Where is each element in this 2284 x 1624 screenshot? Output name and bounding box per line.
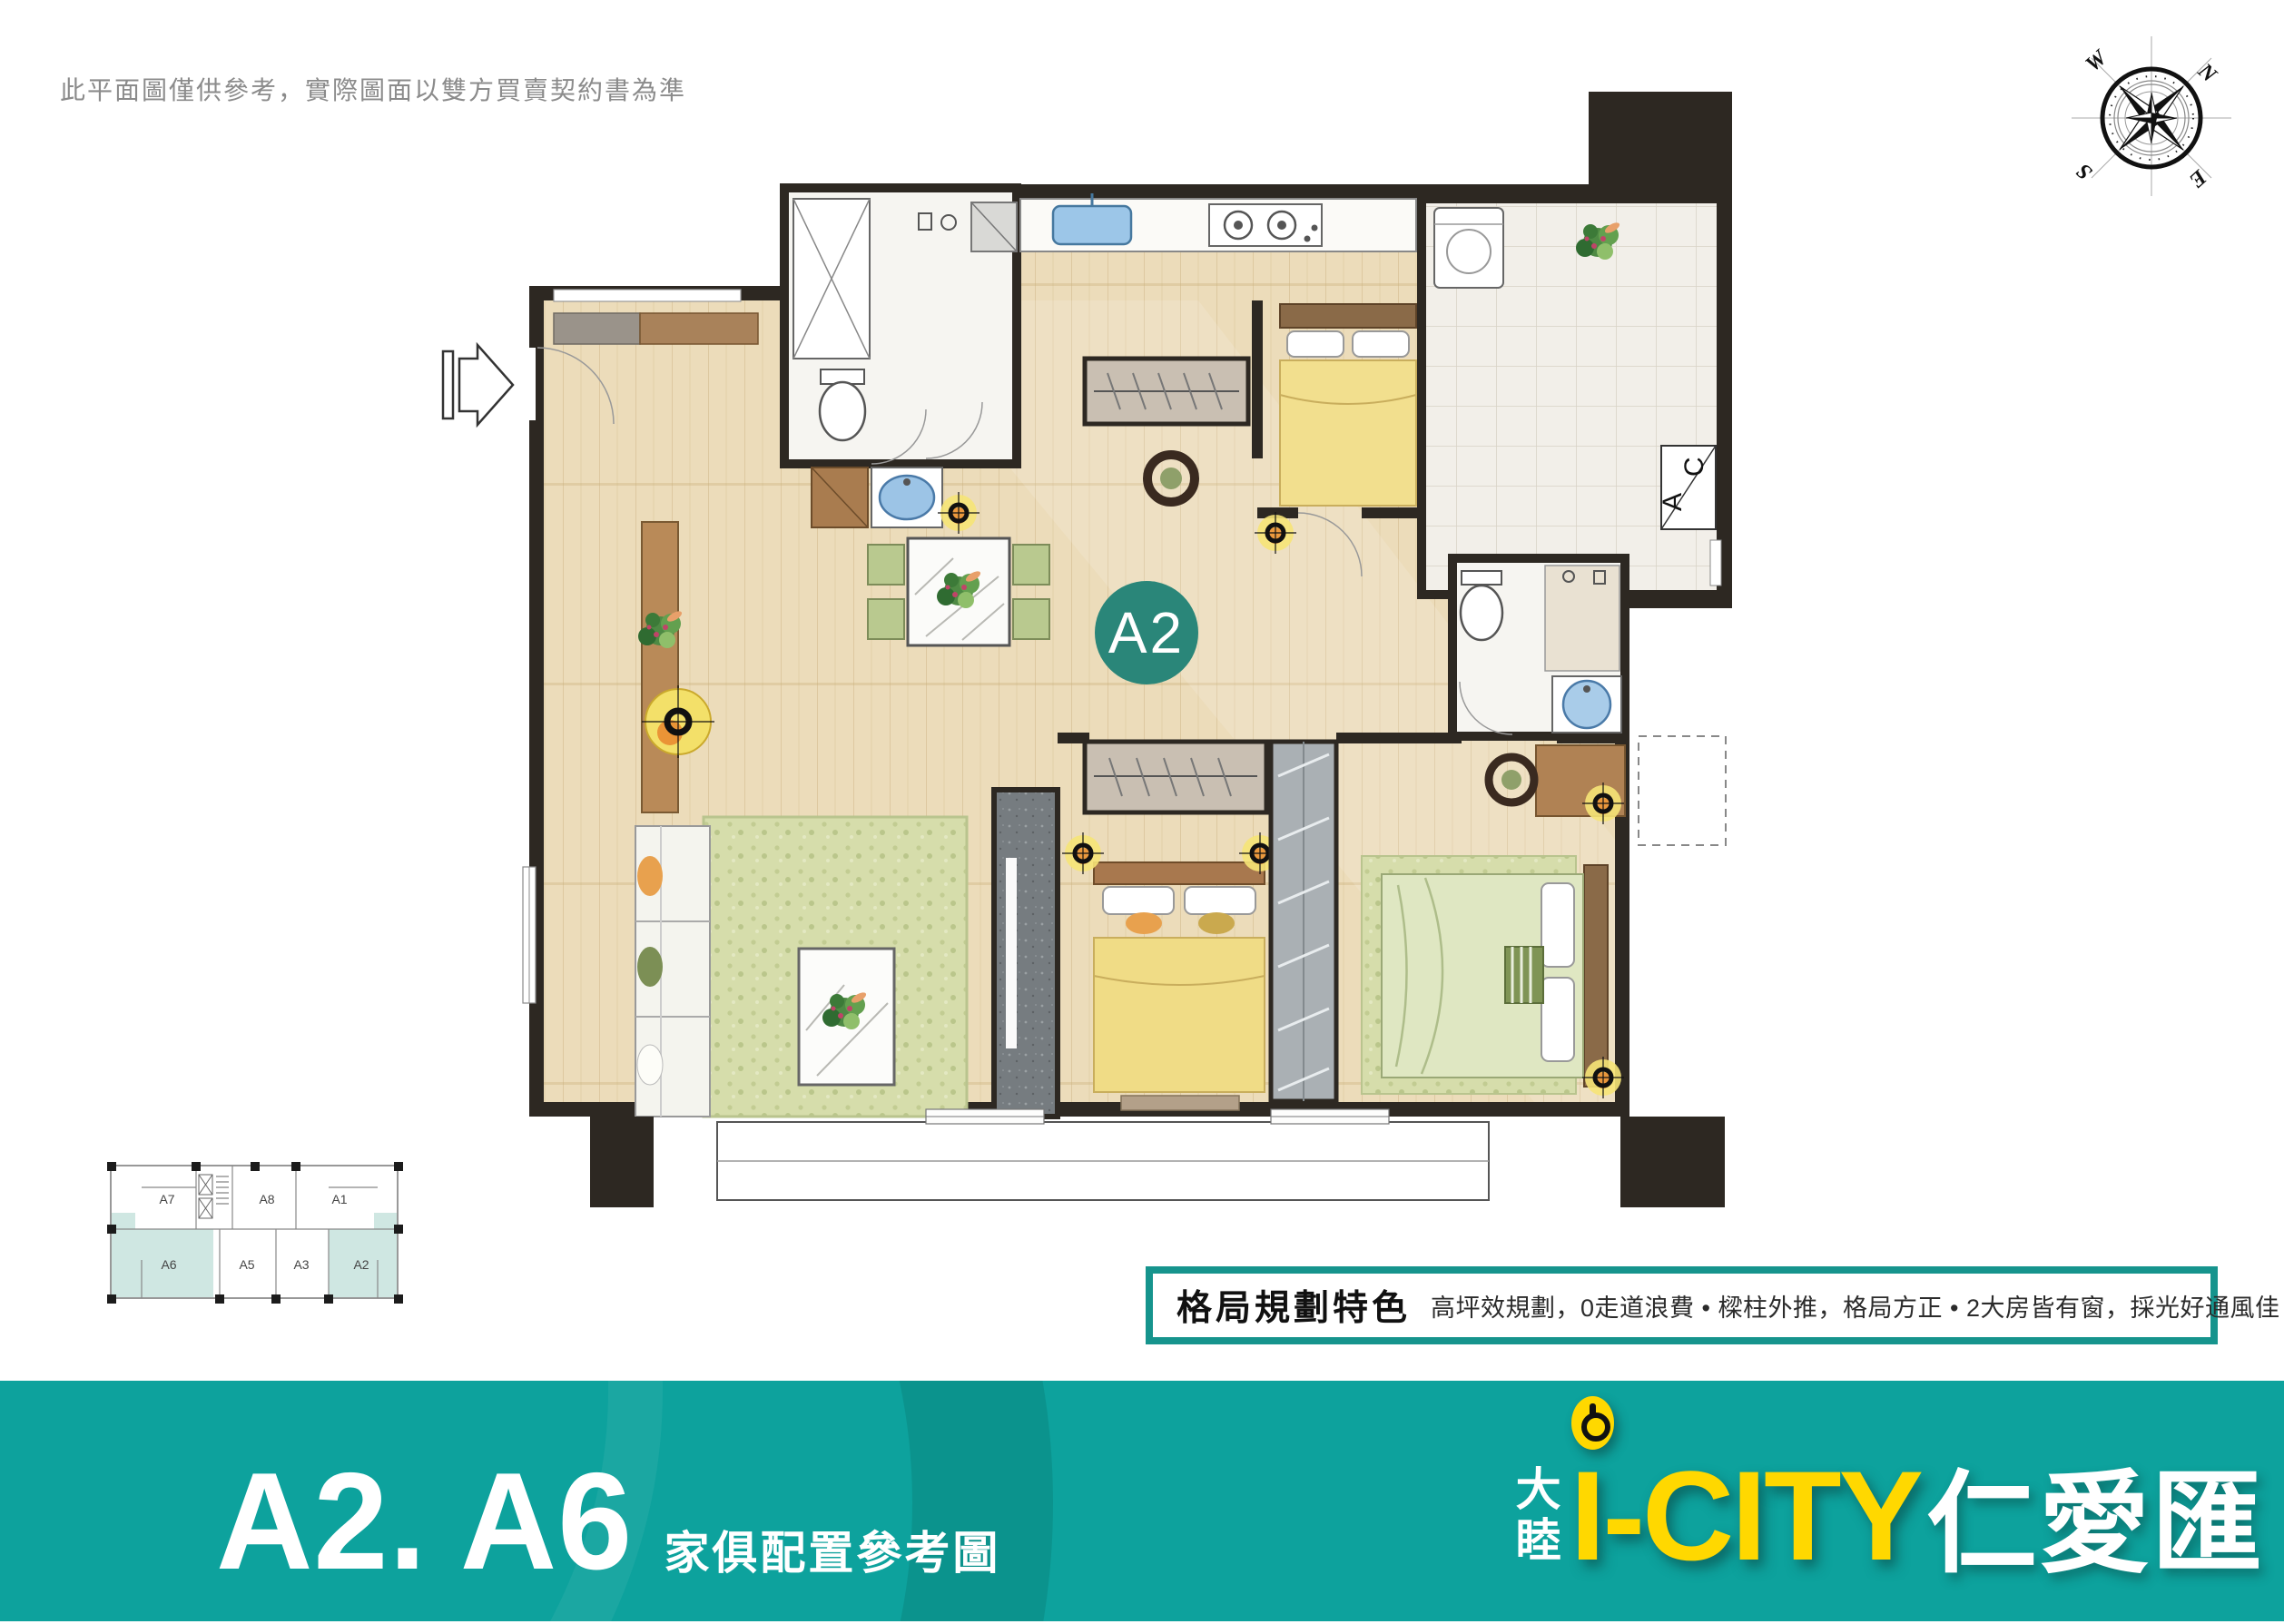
entry-bench xyxy=(554,313,640,344)
feature-box: 格局規劃特色 高坪效規劃，0走道浪費 • 樑柱外推，格局方正 • 2大房皆有窗，… xyxy=(1146,1266,2218,1344)
key-plan: A7 A8 A1 A6 A5 A3 A2 xyxy=(105,1160,407,1305)
unit-badge: A2 xyxy=(1095,581,1198,684)
power-dot-icon xyxy=(1571,1396,1614,1450)
compass-rose-icon: W N S E xyxy=(2072,36,2231,196)
outdoor-platform xyxy=(1639,736,1726,845)
footer-band: A2. A6 家俱配置參考圖 大睦 i-CITY 仁愛匯 xyxy=(0,1381,2284,1621)
footer-title: A2. A6 家俱配置參考圖 xyxy=(216,1452,1000,1590)
console-table xyxy=(642,522,678,812)
stove xyxy=(1209,204,1322,246)
utility-balcony: A C xyxy=(1422,199,1721,595)
brand-logo: 大睦 i-CITY 仁愛匯 xyxy=(1512,1452,2264,1580)
basin xyxy=(1552,676,1621,733)
key-plan-label-a6: A6 xyxy=(161,1257,176,1272)
closet xyxy=(1085,359,1248,424)
compass-star xyxy=(2120,86,2183,150)
key-plan-label-a1: A1 xyxy=(331,1192,347,1206)
tv-wall xyxy=(994,790,1058,1117)
key-plan-label-a7: A7 xyxy=(159,1192,174,1206)
logo-suffix: 仁愛匯 xyxy=(1926,1469,2264,1580)
feature-description: 高坪效規劃，0走道浪費 • 樑柱外推，格局方正 • 2大房皆有窗，採光好通風佳 xyxy=(1431,1288,2279,1324)
ac-label-c: C xyxy=(1679,457,1709,477)
tv xyxy=(1006,858,1017,1048)
bed-bench xyxy=(1121,1096,1239,1110)
shower-area xyxy=(1545,566,1619,671)
kitchen xyxy=(971,193,1416,251)
key-plan-label-a2: A2 xyxy=(353,1257,369,1272)
mirror-closet xyxy=(1271,742,1336,1101)
shoe-cabinet xyxy=(640,313,758,344)
logo-prefix: 大睦 xyxy=(1512,1465,1558,1567)
footer-subtitle: 家俱配置參考圖 xyxy=(664,1528,1000,1580)
toilet xyxy=(1461,571,1502,640)
flyer-page: 此平面圖僅供參考，實際圖面以雙方買賣契約書為準 W N S E xyxy=(0,0,2284,1624)
compass-south-label: S xyxy=(2072,159,2097,184)
entry-opening xyxy=(519,348,536,420)
bathroom-2 xyxy=(1452,558,1625,736)
sofa xyxy=(635,826,710,1117)
compass-north-label: N xyxy=(2192,58,2221,88)
logo-brand: i-CITY xyxy=(1570,1452,1921,1580)
toilet xyxy=(820,369,865,440)
coffee-table xyxy=(799,949,894,1085)
key-plan-label-a5: A5 xyxy=(239,1257,254,1272)
ac-unit: A C xyxy=(1658,446,1716,529)
ac-label-a: A xyxy=(1658,493,1688,511)
logo-brand-text: i-CITY xyxy=(1570,1444,1921,1587)
key-plan-label-a3: A3 xyxy=(293,1257,309,1272)
key-plan-label-a8: A8 xyxy=(259,1192,274,1206)
washing-machine xyxy=(1434,208,1503,288)
floor-plan: A C xyxy=(418,86,1743,1266)
feature-title: 格局規劃特色 xyxy=(1176,1280,1411,1331)
footer-unit-title: A2. A6 xyxy=(216,1452,633,1590)
kitchen-sink xyxy=(1053,206,1131,244)
entry-arrow-icon xyxy=(443,345,513,425)
balcony xyxy=(590,1109,1725,1207)
bed xyxy=(1382,865,1608,1087)
compass-east-label: E xyxy=(2184,164,2211,192)
compass-west-label: W xyxy=(2082,45,2112,77)
vanity-basin xyxy=(812,468,942,527)
closet xyxy=(1085,742,1266,812)
